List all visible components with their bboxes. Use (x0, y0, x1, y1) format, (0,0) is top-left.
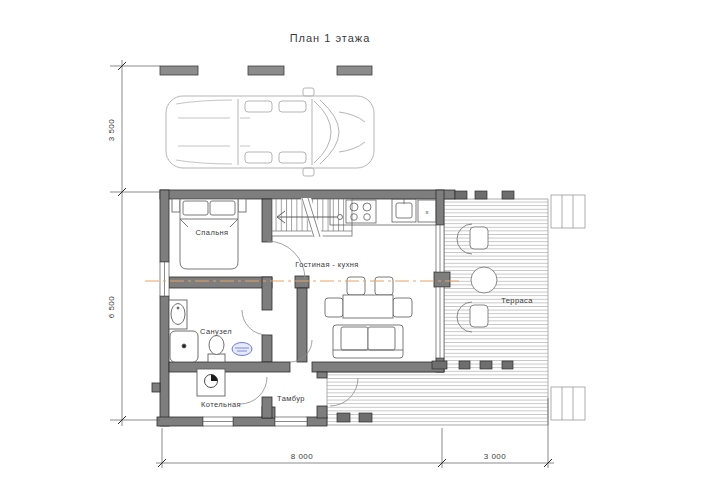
wall-left-upper (160, 190, 169, 262)
wall-hall-east (297, 288, 307, 362)
wall-bedroom-east (262, 199, 272, 242)
pillow (210, 201, 235, 215)
sink-counter-icon (169, 300, 187, 329)
dim-6500: 6 500 (107, 296, 116, 319)
car-trunk-lines (178, 118, 250, 146)
living-kitchen-label: Гостиная - кухня (295, 260, 359, 269)
post (502, 191, 514, 199)
window-right (436, 287, 444, 358)
post (337, 413, 350, 422)
boiler-room-label: Котельная (201, 400, 241, 409)
car-top-view (166, 88, 374, 176)
wall-vestibule-east (317, 372, 327, 378)
chair (375, 277, 393, 295)
dining-set (325, 277, 412, 318)
window-right (436, 225, 444, 272)
wall-south-band (169, 362, 290, 372)
chair (393, 298, 412, 317)
sink-icon (392, 199, 416, 222)
car-hood-lines (339, 112, 365, 152)
nightstand (238, 199, 246, 212)
window-bottom (203, 417, 233, 426)
car-windshield (314, 101, 331, 163)
floor-plan-drawing: План 1 этажа (0, 0, 710, 502)
bedroom-label: Спальня (196, 228, 229, 237)
wall-hall-west (262, 277, 272, 310)
window-bottom (275, 417, 307, 426)
car-cabin (238, 99, 312, 165)
car-window (279, 152, 306, 163)
steps-bottom-right (551, 387, 585, 420)
wall-axis-pier (434, 272, 450, 287)
wall-boiler-divider (262, 397, 272, 418)
window-left (160, 262, 169, 296)
wall-marker (248, 66, 284, 75)
dim-8000: 8 000 (291, 452, 314, 461)
terrace-label: Терраса (501, 296, 533, 305)
plan-title: План 1 этажа (290, 32, 371, 44)
wall-vestibule-east (317, 406, 327, 418)
car-mirror-icon (303, 88, 314, 96)
car-window (279, 101, 306, 112)
wall-top (160, 190, 455, 199)
door-arc-bathroom (242, 310, 267, 335)
wall-hall-west (262, 335, 272, 362)
dim-3500: 3 500 (107, 119, 116, 142)
chair (347, 277, 365, 295)
kitchen (330, 199, 436, 225)
car-rear-contour (176, 100, 232, 164)
pillow (183, 201, 208, 215)
living-furniture (325, 277, 412, 358)
steps-top-right (551, 195, 585, 228)
terrace-steps (551, 195, 585, 420)
wall-right-upper (436, 190, 444, 225)
parking-wall-markers (160, 66, 372, 75)
wall-marker (337, 66, 372, 75)
sofa (333, 325, 403, 358)
stairs-start-dot (338, 215, 343, 220)
post (459, 361, 470, 369)
post (359, 413, 372, 422)
post (475, 191, 487, 199)
dining-table (343, 295, 393, 318)
wall-left-lower (160, 296, 169, 426)
post (502, 361, 513, 369)
floor-plan-canvas: План 1 этажа (0, 0, 710, 502)
bathroom-label: Санузел (200, 327, 232, 336)
wall-bottom (157, 417, 203, 426)
stairs (272, 198, 352, 237)
blue-stamp-icon (232, 343, 252, 356)
post (480, 361, 492, 369)
car-body (166, 96, 374, 168)
car-window (245, 152, 272, 163)
car-window (245, 101, 272, 112)
car-mirror-icon (303, 168, 314, 176)
shower-icon (170, 331, 198, 362)
vestibule-label: Тамбур (277, 394, 305, 403)
dim-3000: 3 000 (484, 452, 507, 461)
chair (325, 298, 343, 317)
wall-marker (160, 66, 198, 75)
nightstand (172, 199, 180, 212)
wall-south-band (312, 362, 444, 372)
dim-extensions (110, 66, 160, 420)
wall-cap (295, 276, 309, 288)
boiler-unit-icon (197, 369, 225, 396)
terrace-round-table (471, 267, 497, 293)
wall-buttress (152, 383, 160, 392)
toilet-icon (208, 336, 225, 363)
fridge-mark: x (426, 209, 429, 215)
post (432, 361, 447, 369)
wall-bedroom-south (169, 277, 272, 288)
post (455, 191, 467, 199)
